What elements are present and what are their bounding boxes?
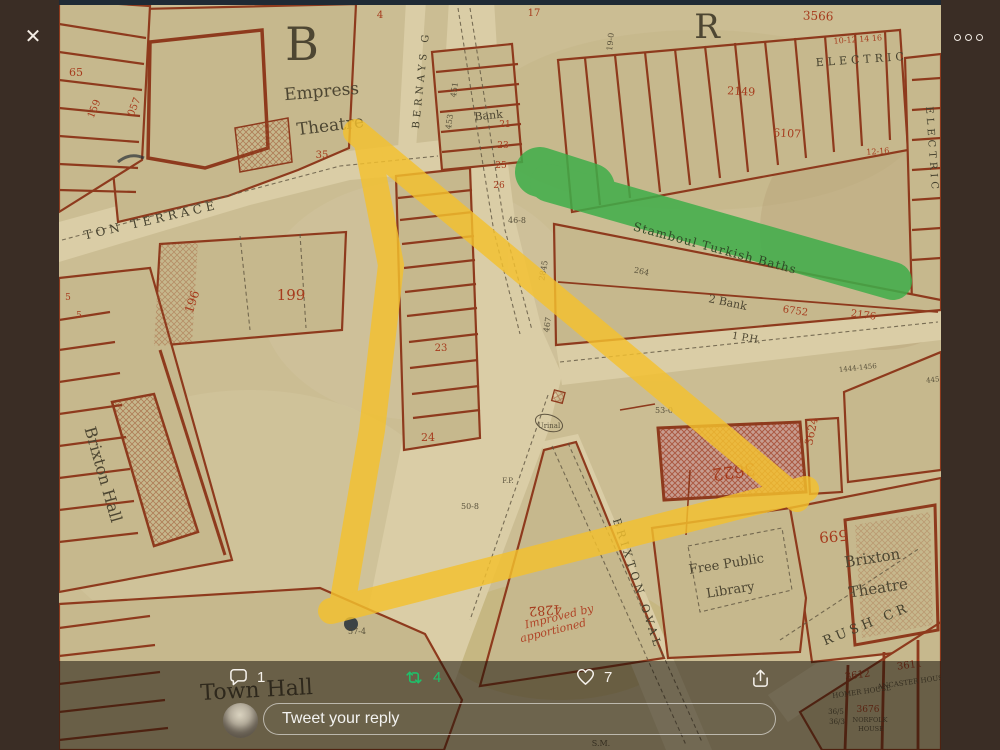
- share-icon: [751, 668, 770, 688]
- dot-icon: [954, 34, 961, 41]
- map-label: 599: [818, 526, 848, 546]
- map-label: 25: [495, 161, 507, 171]
- retweet-count: 4: [433, 669, 441, 686]
- like-button[interactable]: 7: [576, 668, 612, 686]
- map-label: 24: [421, 431, 435, 444]
- reply-count: 1: [257, 669, 265, 686]
- reply-icon: [229, 668, 248, 687]
- map-label: 5: [65, 293, 71, 303]
- map-image[interactable]: B R Empress Theatre BERNAYS G Bank TON T…: [59, 0, 941, 750]
- avatar[interactable]: [223, 703, 258, 738]
- map-label: 6107: [773, 126, 802, 140]
- map-label: 26: [493, 181, 505, 191]
- map-label: F.P.: [502, 477, 514, 485]
- heart-icon: [576, 668, 595, 686]
- reply-input[interactable]: [263, 703, 776, 735]
- map-label: 35: [316, 150, 329, 161]
- dot-icon: [976, 34, 983, 41]
- map-label: 50-8: [461, 502, 479, 511]
- map-label: 2149: [727, 84, 756, 98]
- more-options-button[interactable]: [952, 28, 984, 46]
- like-count: 7: [604, 669, 612, 686]
- map-label: 445: [926, 375, 940, 384]
- map-label: 4282: [528, 601, 562, 618]
- retweet-button[interactable]: 4: [404, 668, 441, 687]
- map-label: 3566: [803, 8, 834, 23]
- map-label: Urinal: [538, 422, 561, 430]
- dot-icon: [965, 34, 972, 41]
- reply-composer: [59, 702, 941, 740]
- map-label: 21: [499, 120, 510, 130]
- map-label: 65: [69, 66, 83, 79]
- map-label: R: [694, 7, 721, 47]
- map-label: 46-8: [508, 216, 526, 225]
- map-label: 5: [76, 311, 82, 321]
- tweet-action-bar: 1 4 7: [59, 666, 941, 692]
- top-edge-strip: [59, 0, 941, 5]
- map-label: B: [285, 17, 319, 71]
- map-label: 17: [528, 8, 541, 19]
- map-label: 19-0: [605, 32, 616, 51]
- retweet-icon: [404, 668, 424, 687]
- photo-stage: B R Empress Theatre BERNAYS G Bank TON T…: [59, 0, 941, 750]
- close-button[interactable]: ✕: [20, 24, 46, 50]
- map-label: 4: [377, 10, 383, 21]
- map-label: 199: [277, 286, 306, 304]
- reply-button[interactable]: 1: [229, 668, 265, 687]
- map-label: 57-4: [348, 627, 366, 636]
- map-label: 23: [435, 343, 448, 354]
- tweet-photo-lightbox: { "lightbox": { "close_icon": "✕", "icon…: [0, 0, 1000, 750]
- share-button[interactable]: [751, 668, 770, 688]
- map-label: 12-16: [866, 146, 890, 157]
- map-label: 23: [497, 141, 509, 151]
